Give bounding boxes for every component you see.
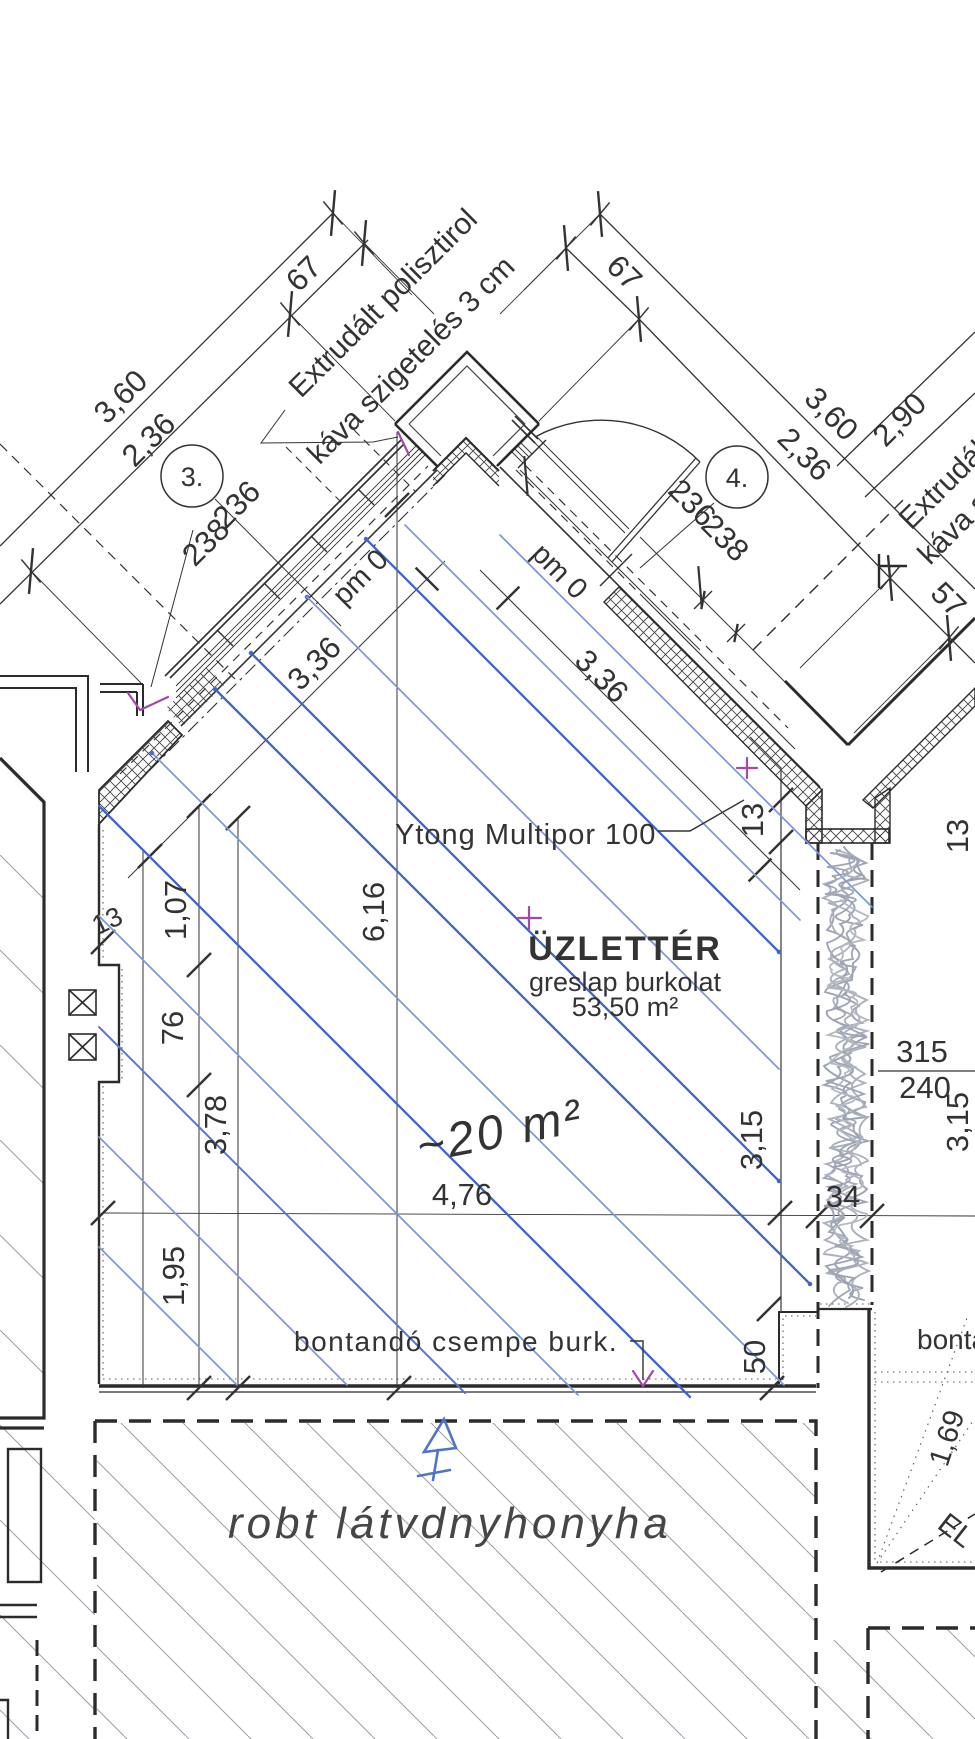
svg-text:3,15: 3,15 xyxy=(734,1110,769,1170)
svg-text:4,76: 4,76 xyxy=(432,1177,492,1212)
svg-text:bontan: bontan xyxy=(917,1324,975,1355)
svg-text:3,78: 3,78 xyxy=(198,1095,233,1155)
svg-text:1,95: 1,95 xyxy=(156,1246,191,1306)
svg-text:bontandó csempe burk.: bontandó csempe burk. xyxy=(294,1326,618,1357)
svg-text:Ytong Multipor 100: Ytong Multipor 100 xyxy=(395,819,656,851)
svg-text:6,16: 6,16 xyxy=(356,882,391,942)
svg-text:76: 76 xyxy=(155,1011,190,1045)
svg-text:3.: 3. xyxy=(181,462,204,492)
svg-text:13: 13 xyxy=(940,819,975,853)
svg-text:53,50 m²: 53,50 m² xyxy=(572,992,679,1022)
svg-text:4.: 4. xyxy=(726,463,749,493)
svg-text:34: 34 xyxy=(826,1179,860,1214)
svg-text:240: 240 xyxy=(899,1070,951,1105)
svg-text:13: 13 xyxy=(735,803,770,837)
svg-text:1,07: 1,07 xyxy=(158,880,193,940)
svg-text:315: 315 xyxy=(896,1034,948,1069)
svg-text:robt látvdnyhonyha: robt látvdnyhonyha xyxy=(228,1499,672,1548)
svg-text:ÜZLETTÉR: ÜZLETTÉR xyxy=(528,930,722,968)
svg-text:50: 50 xyxy=(737,1340,772,1374)
